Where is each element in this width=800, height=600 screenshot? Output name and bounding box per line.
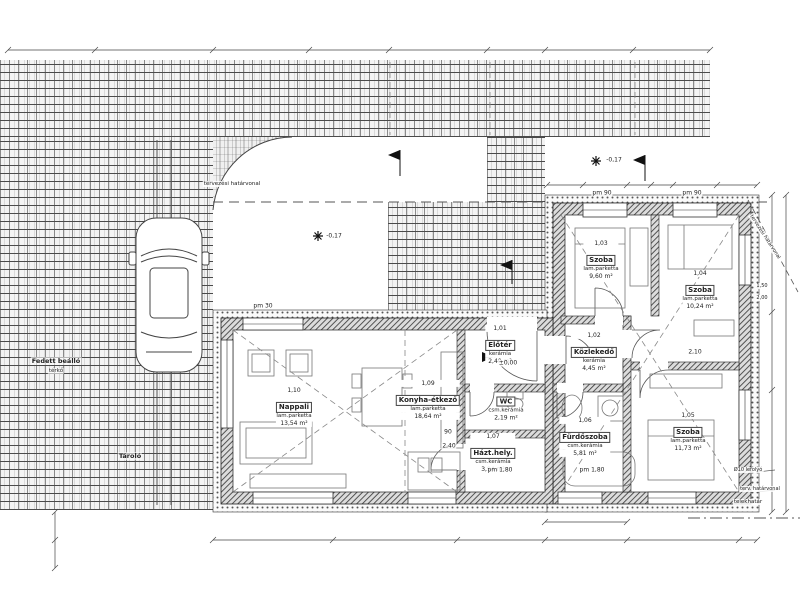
parapet-label-pm180-b: pm 1,80 [579, 467, 606, 474]
room-floor: kerámia [571, 358, 617, 365]
room-floor: lam.parketta [396, 406, 460, 413]
room-number: 1,07 [470, 433, 515, 440]
room-number: 1,09 [396, 380, 460, 387]
terrace-level-value: -0,17 [325, 233, 343, 240]
room-floor: lam.parketta [670, 438, 705, 445]
room-number: 1,04 [682, 270, 717, 277]
room-number: 1,02 [571, 332, 617, 339]
room-floor: csm.kerámia [470, 459, 515, 466]
room-number: 1,01 [485, 325, 515, 332]
entry-level-value: ±0,00 [498, 360, 518, 367]
room-floor: lam.parketta [276, 413, 312, 420]
room-area: 10,24 m² [682, 303, 717, 310]
parapet-label-pm30: pm 30 [252, 303, 273, 310]
room-name: Konyha-étkező [396, 395, 460, 405]
room-label-szoba-1: 1,03 Szoba lam.parketta 9,60 m² [583, 240, 618, 280]
dim-150: 1,50 [755, 283, 768, 289]
room-floor: lam.parketta [682, 296, 717, 303]
room-name: Szoba [586, 255, 616, 265]
plan-linework [0, 0, 800, 600]
design-boundary-label: tervezési határvonal [203, 181, 262, 187]
floor-plan-canvas: 1,10 Nappali lam.parketta 13,54 m² 1,09 … [0, 0, 800, 600]
storage-label: Tároló [118, 452, 142, 460]
room-area: 4,45 m² [571, 365, 617, 372]
room-label-szoba-3: 1,05 Szoba lam.parketta 11,73 m² [670, 412, 705, 452]
room-floor: csm.kerámia [559, 443, 610, 450]
room-area: 13,54 m² [276, 420, 312, 427]
room-name: Fürdőszoba [559, 432, 610, 442]
room-name: Házt.hely. [470, 448, 515, 458]
room-label-nappali: 1,10 Nappali lam.parketta 13,54 m² [276, 387, 312, 427]
carport-label: Fedett beálló [31, 357, 82, 365]
room-name: Nappali [276, 402, 312, 412]
room-area: 9,60 m² [583, 273, 618, 280]
room-number: 1,03 [583, 240, 618, 247]
room-area: 5,81 m² [559, 450, 610, 457]
design-boundary-label-bottom: terv. határvonal [739, 486, 781, 492]
terrace-corner-arc [213, 137, 292, 210]
dim-210: 2,10 [687, 349, 702, 356]
room-area: 2,19 m² [488, 414, 523, 421]
room-name: Előtér [485, 340, 515, 350]
car-illustration [129, 218, 209, 372]
room-name: WC [497, 397, 516, 407]
room-area: 18,64 m² [396, 413, 460, 420]
room-floor: lam.parketta [583, 266, 618, 273]
dim-240: 2,40 [441, 443, 456, 450]
room-label-wc: WC csm.kerámia 2,19 m² [488, 389, 523, 422]
plot-boundary-label: telekhatár [733, 499, 763, 505]
room-name: Szoba [673, 427, 703, 437]
room-label-kozlekedo: 1,02 Közlekedő kerámia 4,45 m² [571, 332, 617, 372]
top-level-value: -0,17 [605, 157, 623, 164]
room-floor: kerámia [485, 351, 515, 358]
room-label-furdoszoba: 1,06 Fürdőszoba csm.kerámia 5,81 m² [559, 417, 610, 457]
room-label-szoba-2: 1,04 Szoba lam.parketta 10,24 m² [682, 270, 717, 310]
parapet-label-pm90-a: pm 90 [591, 190, 612, 197]
carport-floor-label: térkő [48, 368, 64, 374]
room-name: Szoba [685, 285, 715, 295]
drain-label: Ø10 lefolyó [733, 467, 764, 473]
dim-200: 2,00 [755, 295, 768, 301]
room-area: 11,73 m² [670, 445, 705, 452]
room-number: 1,05 [670, 412, 705, 419]
parapet-label-pm90-b: pm 90 [681, 190, 702, 197]
room-number: 1,10 [276, 387, 312, 394]
dim-90: 90 [443, 429, 453, 436]
room-label-konyha: 1,09 Konyha-étkező lam.parketta 18,64 m² [396, 380, 460, 420]
parapet-label-pm180-a: pm 1,80 [487, 467, 514, 474]
room-name: Közlekedő [571, 347, 617, 357]
room-floor: csm.kerámia [488, 408, 523, 415]
room-number: 1,06 [559, 417, 610, 424]
